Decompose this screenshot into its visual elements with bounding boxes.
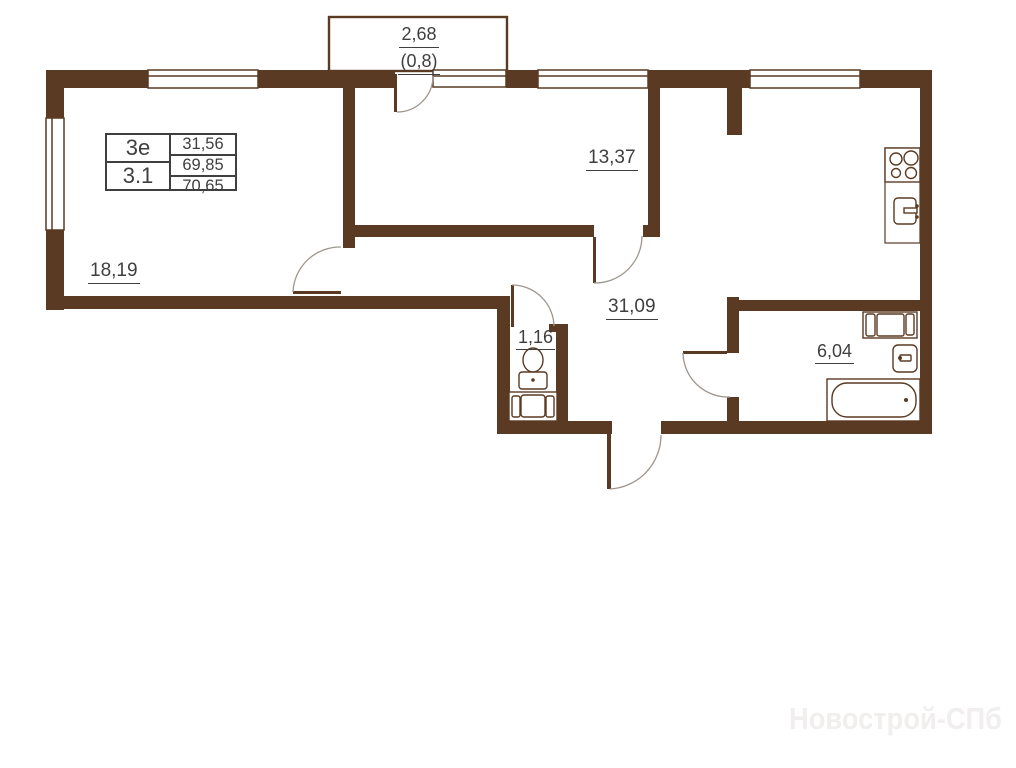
bathtub-icon bbox=[827, 379, 920, 421]
door-arc-icon bbox=[683, 351, 730, 397]
door-arc-icon bbox=[593, 236, 642, 283]
living-room-area-label: 18,19 bbox=[88, 261, 140, 284]
total-area-cell: 70,65 bbox=[171, 175, 235, 196]
window-icon bbox=[750, 70, 860, 88]
balcony-labels: 2,68 (0,8) bbox=[388, 24, 450, 78]
door-arc-icon bbox=[394, 74, 433, 112]
layout-code-cell: 3.1 bbox=[107, 163, 169, 189]
toilet-icon bbox=[519, 348, 547, 389]
floor-plan-drawing bbox=[0, 0, 1016, 768]
vanity-sink-icon bbox=[509, 392, 557, 421]
window-icon bbox=[538, 70, 648, 88]
entrance-door-arc-icon bbox=[607, 434, 661, 489]
watermark: Новострой-СПб bbox=[789, 701, 1002, 737]
living-area-cell: 31,56 bbox=[171, 135, 235, 154]
bathroom-sink-icon bbox=[893, 345, 917, 372]
bathroom-area-label: 6,04 bbox=[815, 342, 854, 364]
kitchen-sink-icon bbox=[894, 198, 919, 224]
floor-area-cell: 69,85 bbox=[171, 154, 235, 175]
legend-table: 3е 3.1 31,56 69,85 70,65 bbox=[105, 133, 237, 191]
legend-left-column: 3е 3.1 bbox=[107, 135, 171, 189]
washing-machine-icon bbox=[863, 312, 917, 338]
fixtures bbox=[509, 148, 920, 421]
balcony-reduced-area-label: (0,8) bbox=[388, 51, 450, 75]
window-icon bbox=[46, 118, 64, 230]
floor-plan: 3е 3.1 31,56 69,85 70,65 2,68 (0,8) 18,1… bbox=[0, 0, 1016, 768]
unit-type-cell: 3е bbox=[107, 135, 169, 163]
walls bbox=[46, 70, 932, 434]
legend-right-column: 31,56 69,85 70,65 bbox=[171, 135, 235, 189]
bedroom-area-label: 13,37 bbox=[586, 148, 638, 171]
window-icon bbox=[148, 70, 258, 88]
balcony-area-label: 2,68 bbox=[388, 24, 450, 48]
stove-icon bbox=[885, 148, 920, 182]
kitchen-living-area-label: 31,09 bbox=[606, 297, 658, 320]
door-arc-icon bbox=[511, 285, 554, 327]
door-arc-icon bbox=[293, 247, 341, 294]
wc-area-label: 1,16 bbox=[516, 328, 555, 350]
